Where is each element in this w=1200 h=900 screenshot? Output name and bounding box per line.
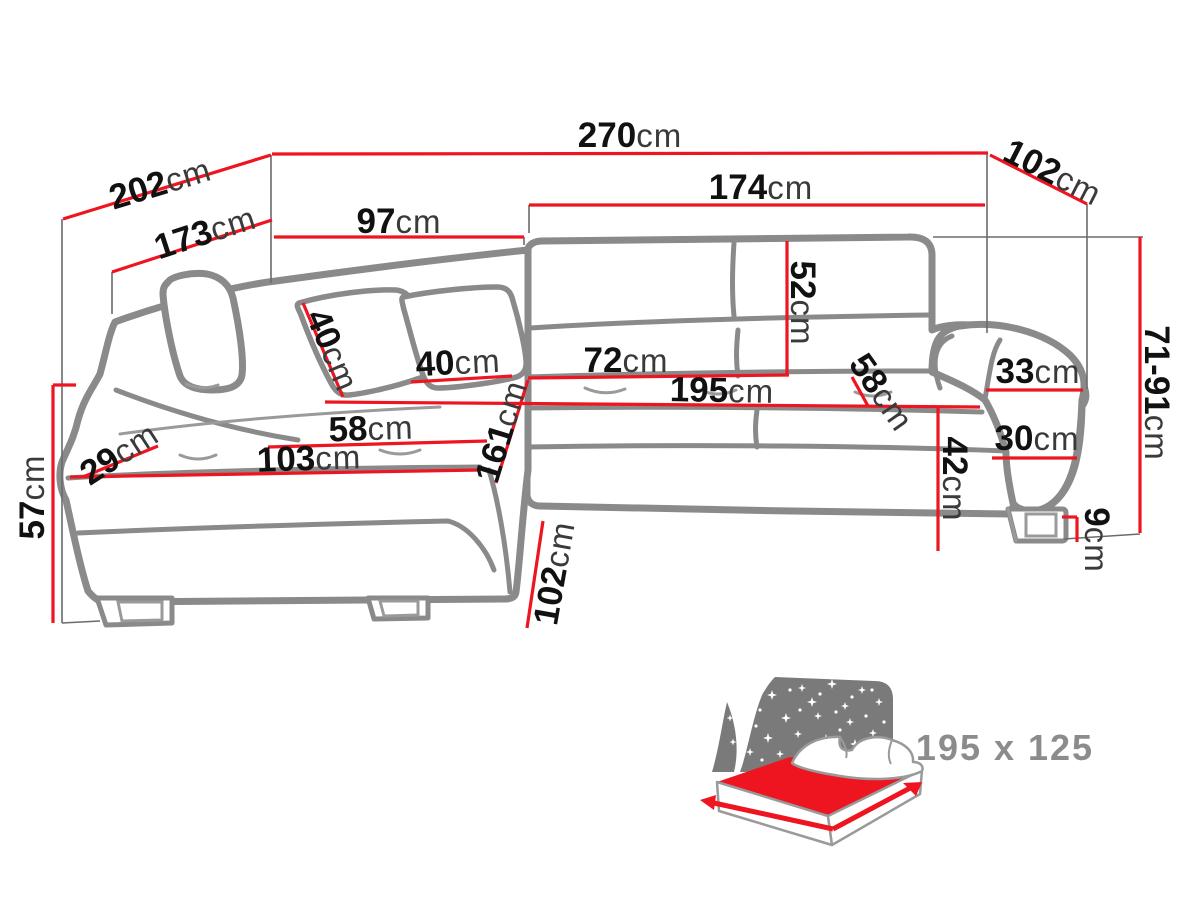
ref-floor-left bbox=[62, 621, 100, 623]
backrest-vertical-seam-upper bbox=[733, 243, 735, 316]
dim-label-174: 174cm bbox=[709, 168, 813, 207]
dim-label-71-91: 71-91cm bbox=[1138, 325, 1177, 461]
dim-label-40-horizontal: 40cm bbox=[415, 340, 502, 383]
dim-label-52: 52cm bbox=[784, 261, 823, 346]
sleeping-area-inset: 195 x 125 bbox=[700, 677, 1094, 845]
dim-label-72: 72cm bbox=[584, 341, 669, 380]
dim-label-173: 173cm bbox=[149, 197, 260, 266]
dim-label-42: 42cm bbox=[936, 437, 975, 522]
dim-label-102-top: 102cm bbox=[998, 131, 1109, 213]
arrow-width-head bbox=[700, 795, 716, 810]
dim-label-30: 30cm bbox=[995, 419, 1080, 458]
sleeping-area-size-label: 195 x 125 bbox=[916, 727, 1094, 768]
backrest-vertical-seam-lower bbox=[737, 330, 739, 376]
dim-label-97: 97cm bbox=[357, 202, 442, 241]
dim-label-195: 195cm bbox=[669, 370, 774, 411]
dim-label-202: 202cm bbox=[104, 149, 215, 217]
seat-vertical-seam bbox=[756, 410, 758, 447]
sofa-dimension-diagram: 270cm 202cm 102cm 173cm 97cm 174cm 52cm … bbox=[0, 0, 1200, 900]
dim-label-33: 33cm bbox=[996, 352, 1081, 391]
dim-label-9: 9cm bbox=[1078, 507, 1117, 572]
dim-label-102-bottom: 102cm bbox=[526, 518, 583, 628]
dimension-diagram-page: 270cm 202cm 102cm 173cm 97cm 174cm 52cm … bbox=[0, 0, 1200, 900]
headboard-crescent-sliver bbox=[712, 702, 737, 772]
dim-label-57: 57cm bbox=[13, 455, 52, 540]
dim-label-270: 270cm bbox=[578, 116, 682, 155]
dim-label-103: 103cm bbox=[256, 437, 362, 480]
